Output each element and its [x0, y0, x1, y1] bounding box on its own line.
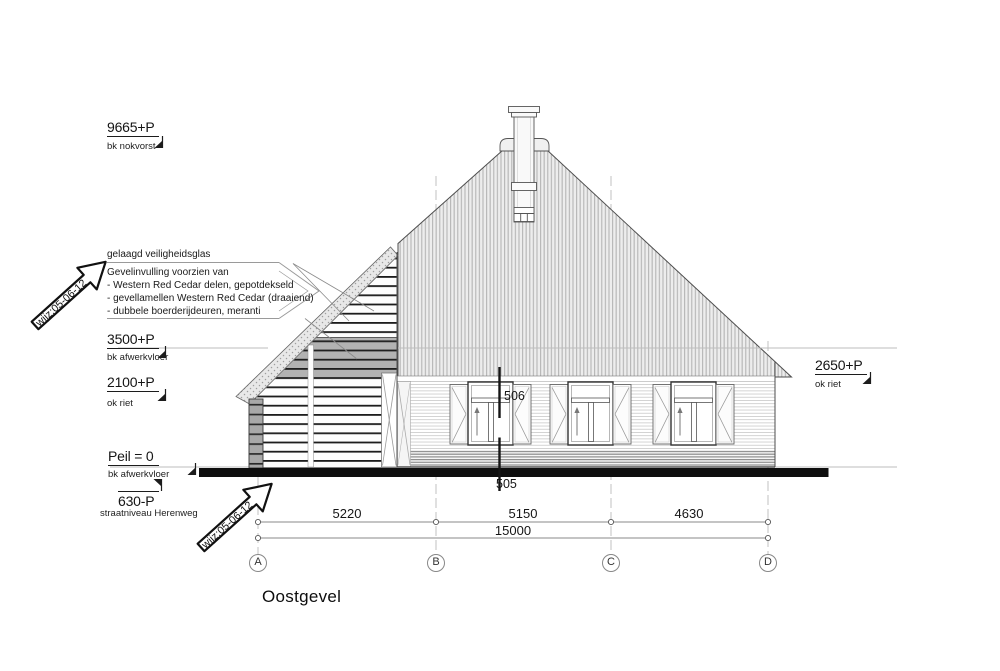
wall-corner-strip — [398, 382, 411, 468]
window-unit-3 — [653, 382, 734, 445]
grid-label-d: D — [758, 556, 778, 568]
drawing-title: Oostgevel — [262, 587, 341, 607]
grid-label-b: B — [426, 556, 446, 568]
level-street-label: straatniveau Herenweg — [100, 508, 198, 519]
level-2100-value: 2100+P — [107, 374, 159, 392]
infill-item: - gevellamellen Western Red Cedar (draai… — [107, 292, 314, 305]
dim-c-d: 4630 — [639, 506, 739, 521]
ground-line — [199, 468, 829, 477]
infill-item: - Western Red Cedar delen, gepotdekseld — [107, 279, 314, 292]
grid-label-a: A — [248, 556, 268, 568]
main-roof — [398, 139, 792, 378]
level-3500-label: bk afwerkvloer — [107, 352, 168, 363]
dim-a-b: 5220 — [297, 506, 397, 521]
infill-callout: Gevelinvulling voorzien van - Western Re… — [107, 266, 314, 318]
level-flag-icon — [186, 463, 197, 476]
level-nok-label: bk nokvorst — [107, 141, 156, 152]
dim-b-c: 5150 — [473, 506, 573, 521]
level-flag-icon — [156, 389, 167, 402]
level-flag-icon — [152, 478, 163, 491]
level-2100-label: ok riet — [107, 398, 133, 409]
glass-note: gelaagd veiligheidsglas — [107, 249, 210, 260]
level-street-value: 630-P — [118, 491, 159, 509]
window-unit-2 — [550, 382, 631, 445]
dim-total: 15000 — [463, 523, 563, 538]
grid-label-c: C — [601, 556, 621, 568]
elevation-sheet: 9665+P bk nokvorst 3500+P bk afwerkvloer… — [0, 0, 1000, 671]
windows — [450, 382, 734, 445]
infill-title: Gevelinvulling voorzien van — [107, 266, 314, 279]
infill-item: - dubbele boerderijdeuren, meranti — [107, 305, 314, 318]
level-nok-value: 9665+P — [107, 119, 159, 137]
section-ref-lower: 505 — [496, 477, 517, 491]
annex-pier — [249, 399, 263, 468]
level-flag-icon — [861, 372, 872, 385]
grid-bubbles — [250, 555, 777, 572]
level-3500-value: 3500+P — [107, 331, 159, 349]
level-peil-value: Peil = 0 — [108, 448, 159, 466]
level-2650-label: ok riet — [815, 379, 841, 390]
level-2650-value: 2650+P — [815, 357, 867, 375]
section-ref-upper: 506 — [504, 389, 525, 403]
barn-door-edge — [382, 373, 398, 467]
